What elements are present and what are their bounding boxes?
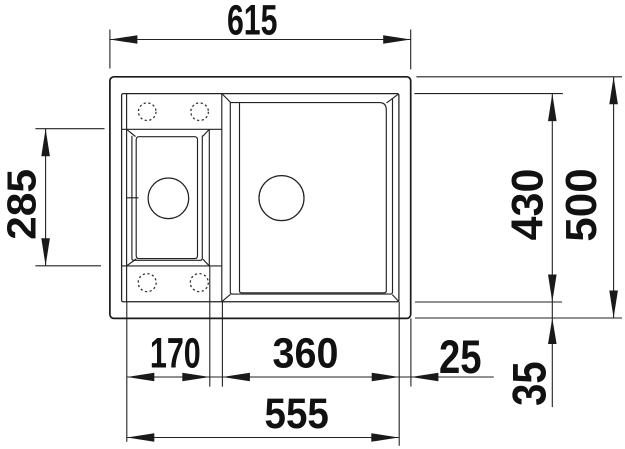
svg-text:430: 430 — [503, 169, 553, 241]
svg-text:500: 500 — [557, 168, 606, 241]
svg-text:285: 285 — [0, 169, 45, 240]
svg-text:25: 25 — [439, 331, 482, 384]
svg-text:555: 555 — [265, 389, 329, 437]
svg-text:360: 360 — [273, 329, 339, 377]
svg-text:170: 170 — [150, 328, 201, 376]
svg-text:615: 615 — [227, 0, 278, 44]
svg-text:35: 35 — [503, 361, 556, 405]
